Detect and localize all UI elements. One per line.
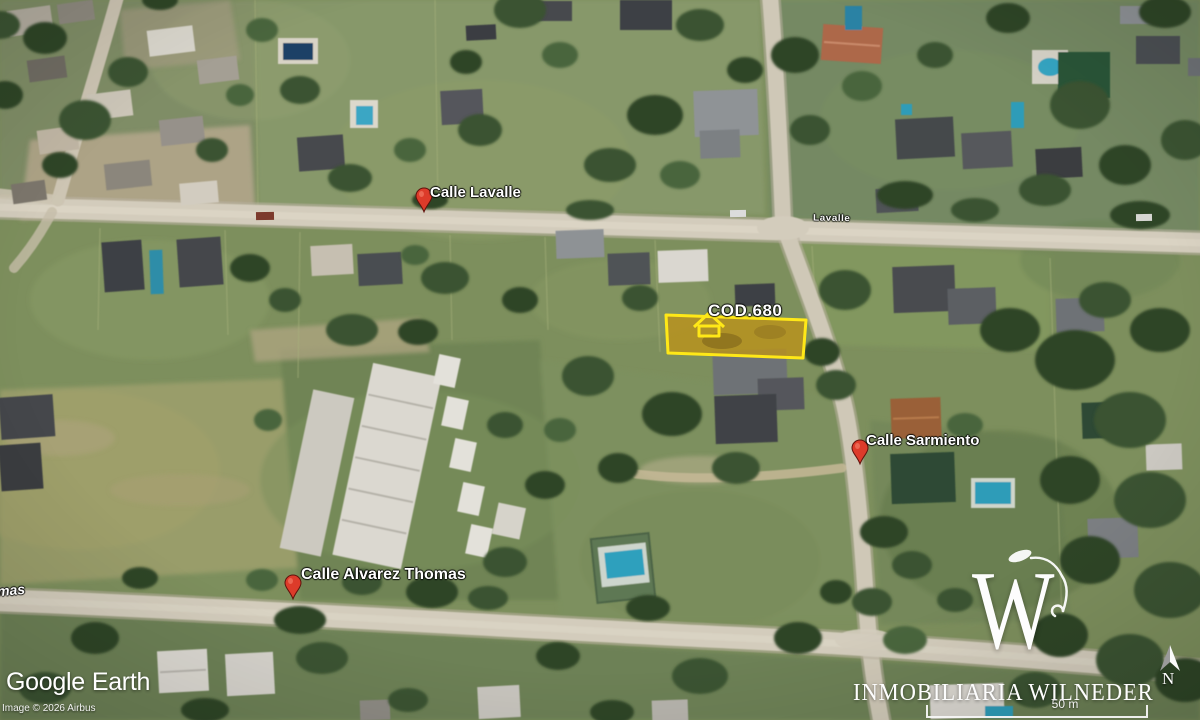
google-earth-logo: GoogleEarth xyxy=(6,668,150,697)
google-earth-logo-earth: Earth xyxy=(92,668,150,696)
agency-monogram: W xyxy=(972,560,1054,663)
google-earth-logo-google: Google xyxy=(6,668,85,696)
scale-label: 50 m xyxy=(1045,697,1085,711)
street-label-alvarez-thomas: Calle Alvarez Thomas xyxy=(301,566,466,584)
street-label-lavalle: Calle Lavalle xyxy=(430,184,521,201)
agency-watermark: INMOBILIARIA WILNEDER xyxy=(853,680,1154,707)
google-earth-map-view[interactable]: Calle Lavalle Lavalle COD.680 Calle Sarm… xyxy=(0,0,1200,720)
street-label-sarmiento: Calle Sarmiento xyxy=(866,432,979,449)
north-label: N xyxy=(1162,669,1174,689)
lot-code-label: COD.680 xyxy=(708,301,782,321)
street-label-thomas-fragment: mas xyxy=(0,581,26,599)
street-name-overlay-lavalle: Lavalle xyxy=(813,213,851,224)
imagery-credit: Image © 2026 Airbus xyxy=(2,703,96,714)
